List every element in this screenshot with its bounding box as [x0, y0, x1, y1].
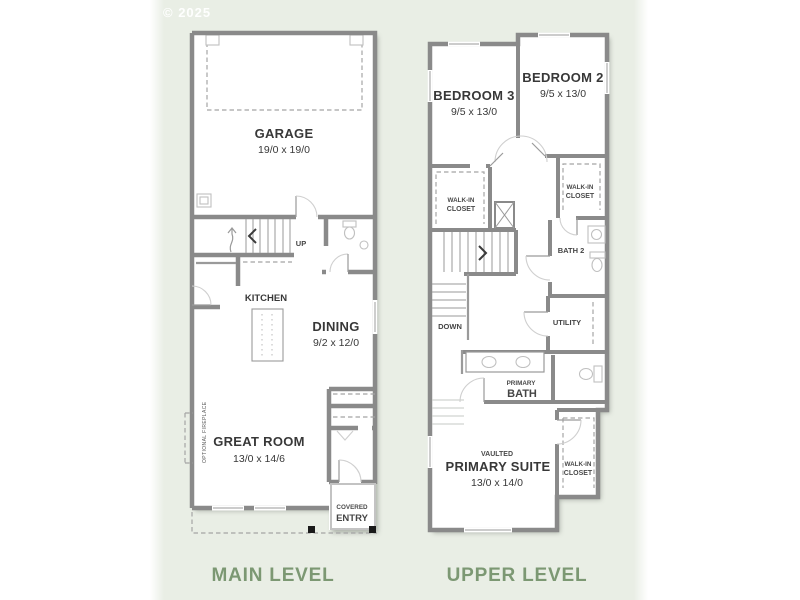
bath2-label: BATH 2 [558, 246, 585, 255]
kitchen-island [252, 309, 283, 361]
porch-post [308, 526, 315, 533]
optional-fireplace-label: OPTIONAL FIREPLACE [202, 401, 208, 463]
great-room-dims: 13/0 x 14/6 [233, 453, 285, 465]
closet2-label-2: CLOSET [566, 193, 595, 200]
main-level-plan: UP KITCHEN GARAGE 19/0 x 19/0 DINING 9/2… [185, 33, 377, 533]
primary-closet-label-1: WALK-IN [565, 461, 592, 468]
kitchen-label: KITCHEN [245, 293, 287, 304]
down-label: DOWN [438, 322, 462, 331]
great-room-label: GREAT ROOM [213, 434, 305, 449]
bedroom2-dims: 9/5 x 13/0 [540, 88, 586, 100]
furnace-fixture-inner [200, 197, 208, 204]
main-level-title: MAIN LEVEL [188, 565, 358, 587]
toilet-bowl [345, 227, 355, 239]
upper-level-plan: WALK-IN CLOSET WALK-IN CLOSET DOWN [428, 33, 610, 533]
primary-bath-label-1: PRIMARY [507, 380, 537, 387]
bath-counter [466, 352, 544, 372]
garage-dims: 19/0 x 19/0 [258, 144, 310, 156]
bath2-toilet-tank [590, 252, 605, 258]
dining-dims: 9/2 x 12/0 [313, 337, 359, 349]
sink [360, 241, 368, 249]
garage-pier [350, 35, 363, 45]
closet3-label-2: CLOSET [447, 206, 476, 213]
up-label: UP [296, 239, 306, 248]
garage-label: GARAGE [255, 126, 314, 141]
primary-suite-label: PRIMARY SUITE [445, 459, 550, 474]
chase-box [495, 202, 514, 228]
floorplan-drawing: UP KITCHEN GARAGE 19/0 x 19/0 DINING 9/2… [0, 0, 800, 600]
toilet-tank [343, 221, 356, 227]
closet3-label-1: WALK-IN [448, 197, 475, 204]
dining-label: DINING [312, 319, 359, 334]
primary-suite-dims: 13/0 x 14/0 [471, 477, 523, 489]
page: { "watermark": "© 2025", "colors": { "pa… [0, 0, 800, 600]
porch-post [369, 526, 376, 533]
covered-entry-label-1: COVERED [336, 504, 368, 511]
garage-pier [206, 35, 219, 45]
toilet-tank [594, 366, 602, 382]
bath-sink [516, 357, 530, 368]
primary-closet-label-2: CLOSET [564, 470, 593, 477]
upper-level-title: UPPER LEVEL [432, 565, 602, 587]
bath-sink [482, 357, 496, 368]
bath2-sink [592, 230, 602, 240]
vaulted-label: VAULTED [481, 451, 513, 458]
bedroom3-label: BEDROOM 3 [433, 88, 514, 103]
primary-bath-label-2: BATH [507, 388, 537, 400]
closet2-label-1: WALK-IN [567, 184, 594, 191]
utility-label: UTILITY [553, 318, 581, 327]
covered-entry-label-2: ENTRY [336, 513, 369, 524]
toilet-bowl [580, 369, 593, 380]
bedroom2-label: BEDROOM 2 [522, 70, 603, 85]
bedroom3-dims: 9/5 x 13/0 [451, 106, 497, 118]
bath2-toilet-bowl [592, 259, 602, 272]
